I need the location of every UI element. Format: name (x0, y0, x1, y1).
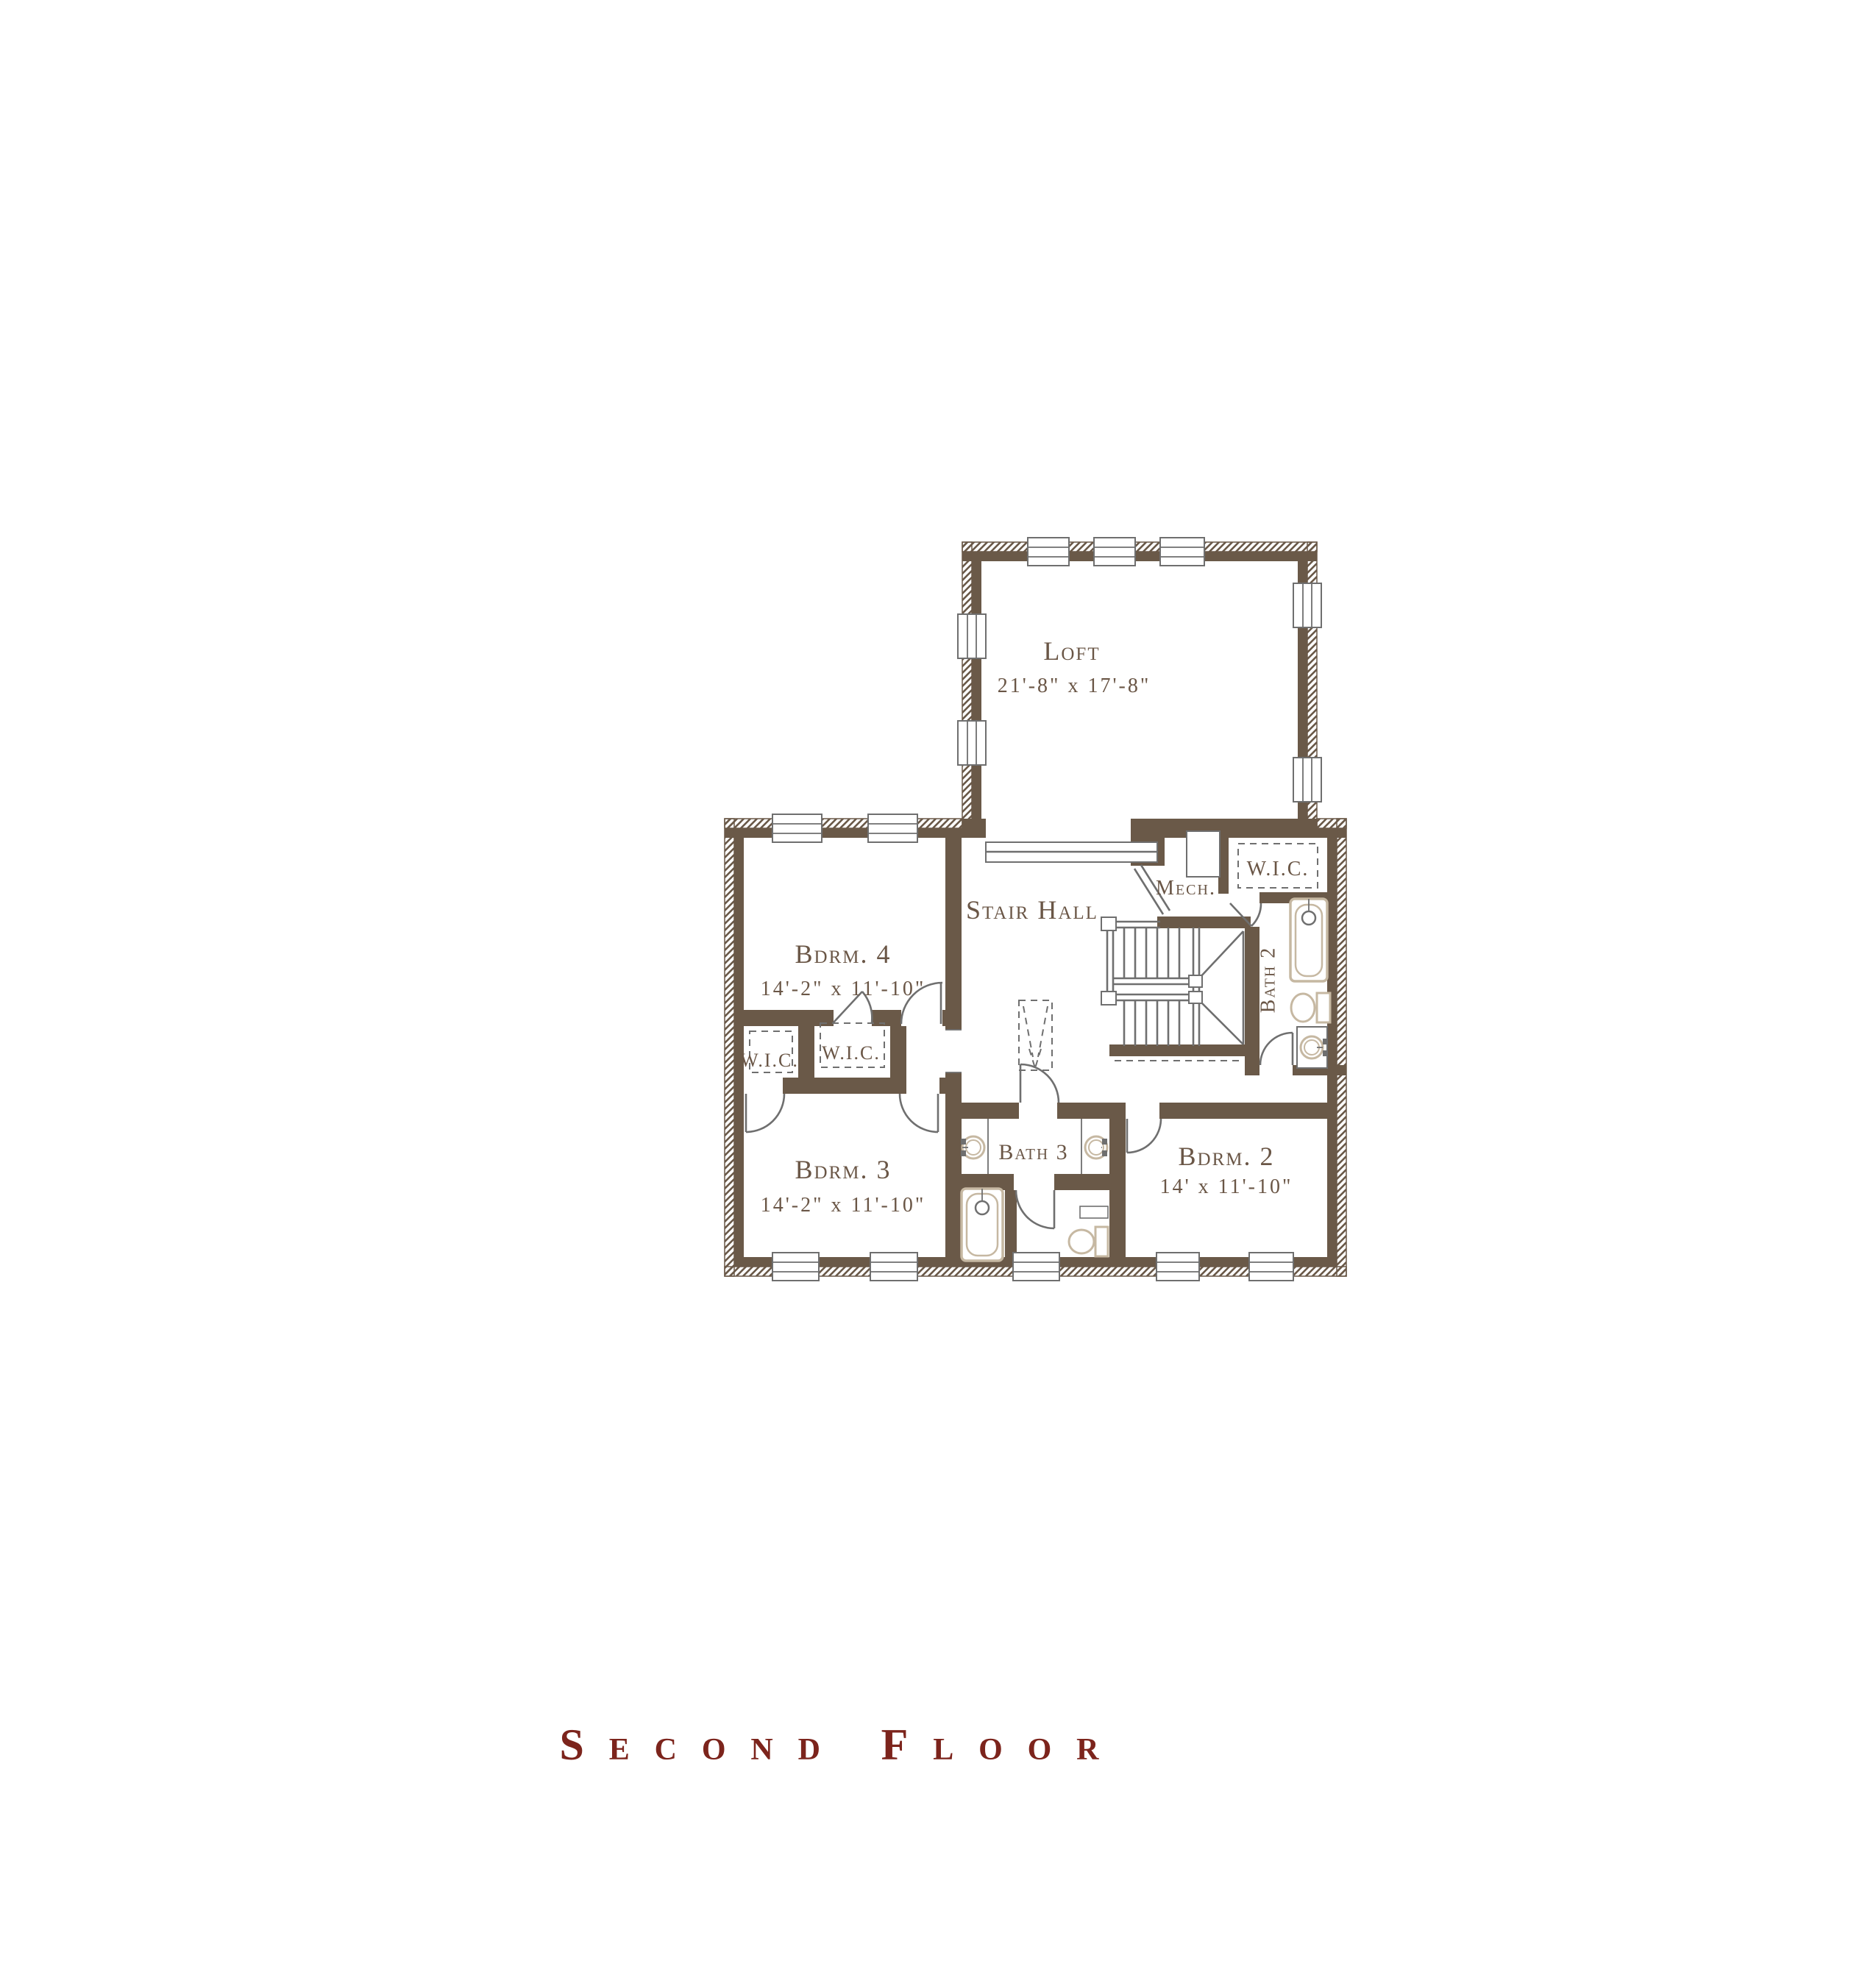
room-wic-mid: W.I.C. (822, 1042, 881, 1064)
attic-access-icon (1019, 1000, 1052, 1070)
room-bdrm4: Bdrm. 4 14'-2" x 11'-10" (761, 939, 926, 1000)
window-icon (958, 614, 986, 658)
window-icon (1156, 1253, 1199, 1281)
door-bdrm3-right (900, 1094, 938, 1132)
page-title: Second Floor (560, 1720, 1100, 1769)
bathtub-bath2-icon (1290, 899, 1327, 981)
room-bath2: Bath 2 (1257, 947, 1280, 1014)
room-label-bath2: Bath 2 (1257, 947, 1280, 1014)
bathtub-bath3-icon (962, 1189, 1003, 1261)
window-icon (1249, 1253, 1293, 1281)
door-bdrm2 (1127, 1119, 1161, 1153)
room-wic-upper: W.I.C. (1247, 858, 1310, 880)
window-icon (1028, 538, 1069, 566)
window-icon (958, 721, 986, 765)
window-icon (772, 1253, 819, 1281)
floor-plan: Loft 21'-8" x 17'-8" Bdrm. 4 14'-2" x 11… (0, 0, 1876, 1986)
room-dims-loft: 21'-8" x 17'-8" (998, 675, 1151, 697)
window-icon (868, 814, 917, 842)
window-icon (772, 814, 822, 842)
door-bath3-hall (1020, 1064, 1059, 1103)
mechanical-unit-icon (1187, 831, 1220, 877)
sink-bath2-icon (1297, 1027, 1328, 1068)
window-icon (1293, 758, 1321, 802)
room-dims-bdrm4: 14'-2" x 11'-10" (761, 978, 926, 1000)
room-dims-bdrm3: 14'-2" x 11'-10" (761, 1194, 926, 1217)
room-label-wic-left: W.I.C. (740, 1050, 799, 1071)
room-bath3: Bath 3 (998, 1140, 1068, 1164)
sink-bath3-right-icon (1085, 1136, 1107, 1158)
window-icon (1160, 538, 1204, 566)
room-bdrm2: Bdrm. 2 14' x 11'-10" (1160, 1142, 1293, 1198)
room-dims-bdrm2: 14' x 11'-10" (1160, 1175, 1293, 1198)
window-icon (1094, 538, 1135, 566)
room-label-bdrm3: Bdrm. 3 (795, 1155, 892, 1184)
toilet-bath2-icon (1291, 993, 1330, 1022)
room-bdrm3: Bdrm. 3 14'-2" x 11'-10" (761, 1155, 926, 1217)
toilet-bath3-icon (1069, 1206, 1108, 1256)
room-label-bdrm4: Bdrm. 4 (795, 939, 892, 969)
door-bath3-compartment (1016, 1190, 1054, 1228)
window-icon (1013, 1253, 1059, 1281)
room-label-bath3: Bath 3 (998, 1140, 1068, 1164)
room-label-mech: Mech. (1156, 877, 1216, 900)
sink-bath3-left-icon (961, 1136, 984, 1158)
loft-railing-icon (986, 842, 1157, 862)
room-label-stair-hall: Stair Hall (966, 895, 1098, 925)
room-label-bdrm2: Bdrm. 2 (1179, 1142, 1275, 1171)
door-bath2 (1260, 1033, 1293, 1065)
room-label-loft: Loft (1043, 636, 1100, 666)
room-label-wic-mid: W.I.C. (822, 1042, 881, 1064)
door-bdrm3-left (746, 1094, 784, 1132)
room-loft: Loft 21'-8" x 17'-8" (998, 636, 1151, 697)
room-wic-left: W.I.C. (740, 1050, 799, 1071)
staircase-icon (1101, 917, 1243, 1061)
window-icon (1293, 583, 1321, 627)
window-icon (870, 1253, 917, 1281)
room-label-wic-upper: W.I.C. (1247, 858, 1310, 880)
room-mech: Mech. (1156, 877, 1216, 900)
room-stair-hall: Stair Hall (966, 895, 1098, 925)
